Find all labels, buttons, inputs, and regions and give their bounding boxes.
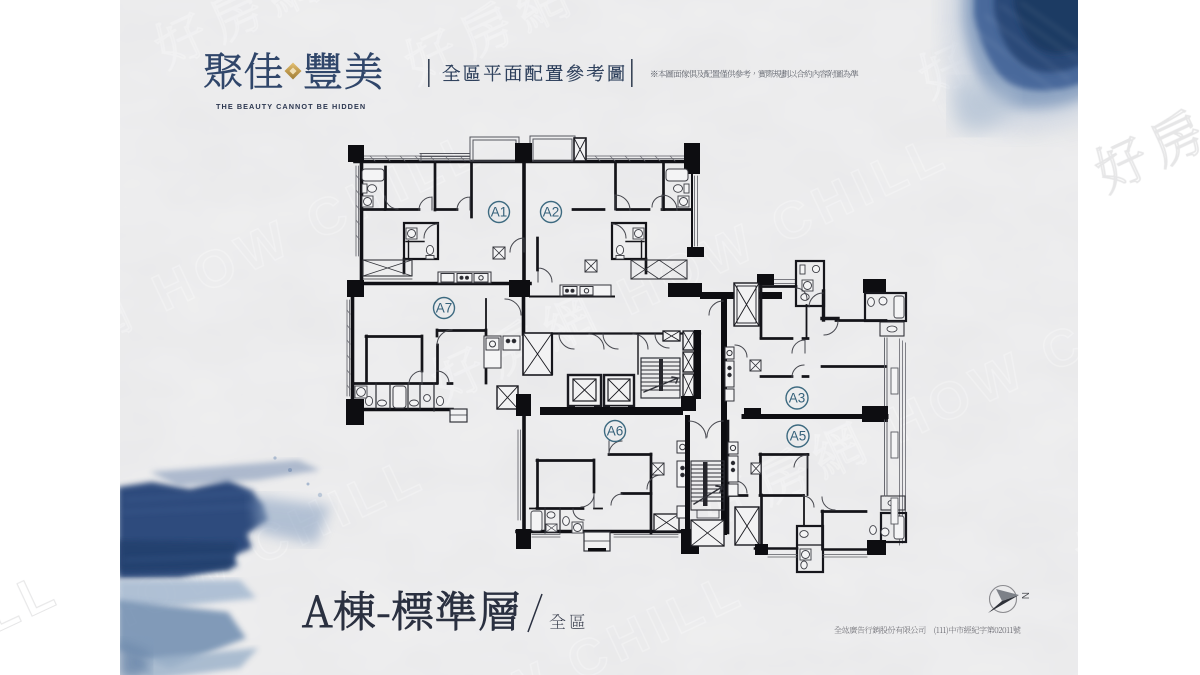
svg-text:A7: A7 xyxy=(436,301,453,316)
svg-text:THE BEAUTY CANNOT BE HIDDEN: THE BEAUTY CANNOT BE HIDDEN xyxy=(216,102,366,111)
svg-text:A2: A2 xyxy=(543,205,560,220)
svg-text:N: N xyxy=(1019,592,1030,599)
svg-text:A6: A6 xyxy=(607,424,624,439)
svg-text:A5: A5 xyxy=(790,429,807,444)
svg-text:A1: A1 xyxy=(491,205,508,220)
svg-text:A3: A3 xyxy=(789,391,806,406)
